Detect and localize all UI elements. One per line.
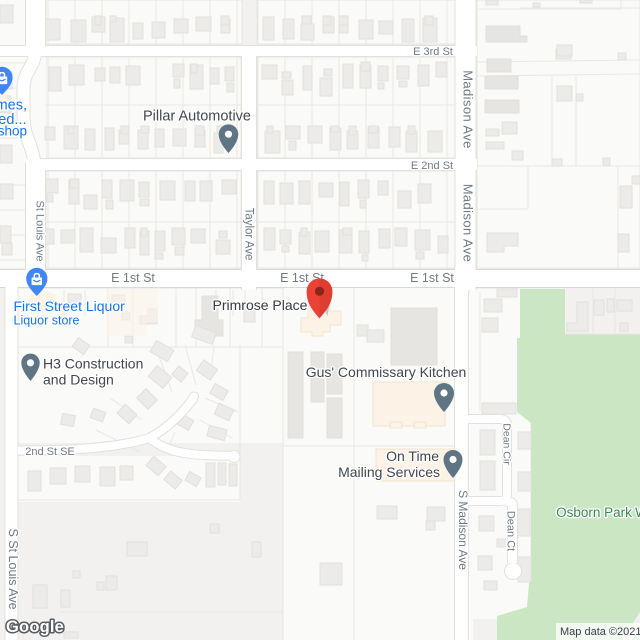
svg-text:Dean Cir: Dean Cir bbox=[501, 423, 513, 465]
svg-text:Primrose Place: Primrose Place bbox=[213, 297, 308, 313]
svg-text:Google: Google bbox=[6, 618, 64, 636]
svg-text:Pillar Automotive: Pillar Automotive bbox=[143, 109, 251, 125]
svg-text:Dean Ct: Dean Ct bbox=[505, 511, 517, 551]
svg-text:Liquor store: Liquor store bbox=[14, 314, 80, 328]
svg-text:H3 Construction: H3 Construction bbox=[43, 356, 143, 372]
svg-text:and Design: and Design bbox=[43, 372, 114, 388]
svg-text:St Louis Ave: St Louis Ave bbox=[34, 201, 46, 262]
svg-text:shop: shop bbox=[0, 124, 27, 139]
svg-text:E 1st St: E 1st St bbox=[111, 271, 155, 285]
svg-text:Mailing Services: Mailing Services bbox=[338, 464, 440, 480]
svg-text:Map data ©2021: Map data ©2021 bbox=[560, 626, 640, 638]
svg-text:S St Louis Ave: S St Louis Ave bbox=[6, 528, 20, 609]
svg-text:First Street Liquor: First Street Liquor bbox=[14, 298, 126, 314]
svg-text:Madison Ave: Madison Ave bbox=[461, 70, 476, 149]
svg-text:2nd St SE: 2nd St SE bbox=[25, 446, 75, 458]
svg-text:E 1st St: E 1st St bbox=[410, 271, 454, 285]
svg-text:Gus' Commissary Kitchen: Gus' Commissary Kitchen bbox=[306, 364, 467, 380]
svg-text:On Time: On Time bbox=[386, 448, 439, 464]
svg-text:Madison Ave: Madison Ave bbox=[461, 184, 476, 263]
svg-text:Taylor Ave: Taylor Ave bbox=[243, 208, 255, 261]
svg-text:Osborn Park: Osborn Park bbox=[556, 505, 632, 520]
svg-text:W: W bbox=[635, 505, 640, 520]
svg-text:S Madison Ave: S Madison Ave bbox=[456, 490, 470, 570]
svg-text:E 2nd St: E 2nd St bbox=[411, 160, 453, 172]
svg-text:E 3rd St: E 3rd St bbox=[413, 46, 453, 58]
